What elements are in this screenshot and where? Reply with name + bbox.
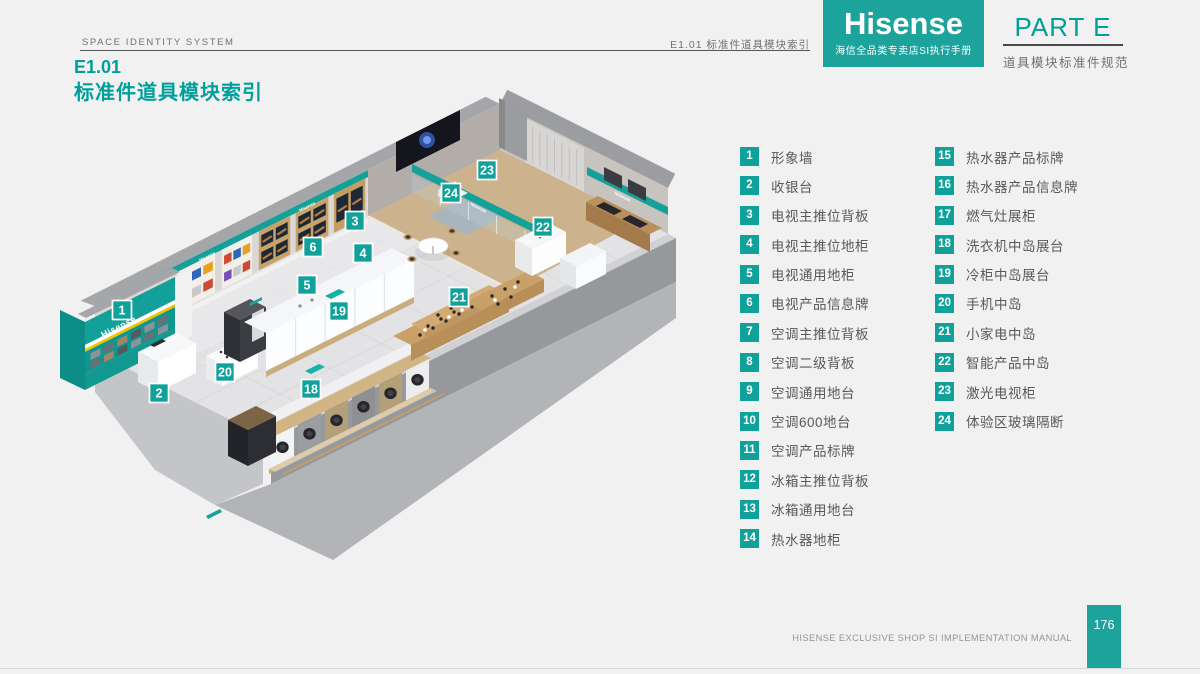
legend-badge-3: 3 bbox=[740, 206, 759, 225]
appliance-item bbox=[509, 295, 512, 298]
plan-badge-1: 1 bbox=[113, 301, 132, 320]
legend-badge-6: 6 bbox=[740, 294, 759, 313]
legend-badge-4: 4 bbox=[740, 235, 759, 254]
image-wall-return bbox=[60, 310, 85, 390]
legend-label-7: 空调主推位背板 bbox=[771, 323, 869, 343]
legend-item-4: 4电视主推位地柜 bbox=[740, 235, 869, 254]
legend-label-15: 热水器产品标牌 bbox=[966, 147, 1064, 167]
plan-badge-number-5: 5 bbox=[304, 279, 311, 293]
legend-badge-21: 21 bbox=[935, 323, 954, 342]
appliance-item bbox=[452, 310, 455, 313]
legend-item-19: 19冷柜中岛展台 bbox=[935, 265, 1078, 284]
legend-badge-7: 7 bbox=[740, 323, 759, 342]
legend-item-11: 11空调产品标牌 bbox=[740, 441, 869, 460]
footer-manual-label: HISENSE EXCLUSIVE SHOP SI IMPLEMENTATION… bbox=[792, 633, 1072, 643]
legend-badge-11: 11 bbox=[740, 441, 759, 460]
plan-badge-20: 20 bbox=[216, 363, 235, 382]
phone-item bbox=[226, 356, 229, 359]
appliance-item bbox=[457, 312, 460, 315]
legend-badge-16: 16 bbox=[935, 176, 954, 195]
legend-label-23: 激光电视柜 bbox=[966, 382, 1036, 402]
plan-badge-number-6: 6 bbox=[310, 241, 317, 255]
legend-item-23: 23激光电视柜 bbox=[935, 382, 1078, 401]
legend-label-16: 热水器产品信息牌 bbox=[966, 176, 1078, 196]
legend-item-22: 22智能产品中岛 bbox=[935, 353, 1078, 372]
legend-badge-24: 24 bbox=[935, 412, 954, 431]
legend-item-8: 8空调二级背板 bbox=[740, 353, 869, 372]
legend-item-20: 20手机中岛 bbox=[935, 294, 1078, 313]
washer-door-glass bbox=[415, 377, 421, 383]
appliance-item bbox=[439, 317, 442, 320]
legend-label-4: 电视主推位地柜 bbox=[771, 235, 869, 255]
washer-door-glass bbox=[280, 444, 286, 450]
legend-badge-20: 20 bbox=[935, 294, 954, 313]
plan-badge-number-4: 4 bbox=[360, 247, 367, 261]
legend-label-14: 热水器地柜 bbox=[771, 529, 841, 549]
legend-badge-9: 9 bbox=[740, 382, 759, 401]
legend-item-14: 14热水器地柜 bbox=[740, 529, 869, 548]
legend-label-2: 收银台 bbox=[771, 176, 813, 196]
appliance-item bbox=[470, 305, 473, 308]
plan-badge-number-23: 23 bbox=[480, 164, 494, 178]
legend-badge-18: 18 bbox=[935, 235, 954, 254]
legend-badge-10: 10 bbox=[740, 412, 759, 431]
legend-label-5: 电视通用地柜 bbox=[771, 264, 855, 284]
legend-label-12: 冰箱主推位背板 bbox=[771, 470, 869, 490]
plan-badge-21: 21 bbox=[450, 288, 469, 307]
legend-item-18: 18洗衣机中岛展台 bbox=[935, 235, 1078, 254]
plan-badge-5: 5 bbox=[298, 276, 317, 295]
legend-badge-15: 15 bbox=[935, 147, 954, 166]
legend-column-1: 1形象墙2收银台3电视主推位背板4电视主推位地柜5电视通用地柜6电视产品信息牌7… bbox=[740, 147, 869, 558]
appliance-item bbox=[490, 294, 493, 297]
appliance-item bbox=[436, 313, 439, 316]
legend-badge-13: 13 bbox=[740, 500, 759, 519]
legend-badge-23: 23 bbox=[935, 382, 954, 401]
plate-item bbox=[460, 308, 464, 312]
appliance-item bbox=[516, 280, 519, 283]
legend-badge-14: 14 bbox=[740, 529, 759, 548]
legend-item-3: 3电视主推位背板 bbox=[740, 206, 869, 225]
legend-badge-5: 5 bbox=[740, 265, 759, 284]
hisense-logo-box: Hisense 海信全品类专卖店SI执行手册 bbox=[823, 0, 984, 67]
legend-label-1: 形象墙 bbox=[771, 147, 813, 167]
plan-badge-18: 18 bbox=[302, 380, 321, 399]
legend-label-8: 空调二级背板 bbox=[771, 352, 855, 372]
chair-seat bbox=[453, 251, 458, 254]
plan-badge-2: 2 bbox=[150, 384, 169, 403]
appliance-item bbox=[426, 324, 429, 327]
legend-column-2: 15热水器产品标牌16热水器产品信息牌17燃气灶展柜18洗衣机中岛展台19冷柜中… bbox=[935, 147, 1078, 441]
legend-label-22: 智能产品中岛 bbox=[966, 352, 1050, 372]
legend-label-3: 电视主推位背板 bbox=[771, 205, 869, 225]
legend-item-6: 6电视产品信息牌 bbox=[740, 294, 869, 313]
legend-badge-17: 17 bbox=[935, 206, 954, 225]
plan-badge-number-18: 18 bbox=[304, 383, 318, 397]
plan-badge-number-24: 24 bbox=[444, 187, 458, 201]
hisense-logo-subtitle: 海信全品类专卖店SI执行手册 bbox=[823, 42, 984, 57]
appliance-item bbox=[444, 319, 447, 322]
plan-badge-24: 24 bbox=[442, 184, 461, 203]
plan-badge-number-21: 21 bbox=[452, 291, 466, 305]
legend-label-11: 空调产品标牌 bbox=[771, 440, 855, 460]
washer-door-glass bbox=[388, 390, 394, 396]
legend-item-13: 13冰箱通用地台 bbox=[740, 500, 869, 519]
legend-item-15: 15热水器产品标牌 bbox=[935, 147, 1078, 166]
legend-label-6: 电视产品信息牌 bbox=[771, 293, 869, 313]
plan-badge-number-19: 19 bbox=[332, 305, 346, 319]
plan-badge-22: 22 bbox=[534, 218, 553, 237]
pillar bbox=[175, 268, 192, 345]
phone-item bbox=[220, 351, 223, 354]
legend-label-21: 小家电中岛 bbox=[966, 323, 1036, 343]
legend-item-10: 10空调600地台 bbox=[740, 412, 869, 431]
legend-item-16: 16热水器产品信息牌 bbox=[935, 176, 1078, 195]
appliance-item bbox=[496, 302, 499, 305]
appliance-item bbox=[503, 287, 506, 290]
legend-label-9: 空调通用地台 bbox=[771, 382, 855, 402]
legend-item-21: 21小家电中岛 bbox=[935, 323, 1078, 342]
plan-badge-number-22: 22 bbox=[536, 221, 550, 235]
legend-label-18: 洗衣机中岛展台 bbox=[966, 235, 1064, 255]
plan-badge-19: 19 bbox=[330, 302, 349, 321]
appliance-item bbox=[418, 333, 421, 336]
chair-seat bbox=[405, 235, 410, 238]
plan-badge-3: 3 bbox=[346, 212, 365, 231]
part-title: PART E bbox=[1003, 12, 1123, 43]
legend-item-7: 7空调主推位背板 bbox=[740, 323, 869, 342]
footer-rule bbox=[0, 668, 1200, 669]
part-subtitle: 道具模块标准件规范 bbox=[1003, 52, 1123, 71]
washer-door-glass bbox=[307, 431, 313, 437]
legend-item-12: 12冰箱主推位背板 bbox=[740, 470, 869, 489]
tall-cabinet-side bbox=[499, 98, 505, 150]
chair-seat bbox=[409, 257, 414, 260]
legend-item-9: 9空调通用地台 bbox=[740, 382, 869, 401]
washer-door-glass bbox=[334, 417, 340, 423]
page-number-badge: 176 bbox=[1087, 605, 1121, 668]
legend-label-17: 燃气灶展柜 bbox=[966, 205, 1036, 225]
plan-badge-number-2: 2 bbox=[156, 387, 163, 401]
legend-label-13: 冰箱通用地台 bbox=[771, 499, 855, 519]
plate-item bbox=[423, 328, 427, 332]
legend-label-24: 体验区玻璃隔断 bbox=[966, 411, 1064, 431]
appliance-item bbox=[431, 326, 434, 329]
plan-badge-number-3: 3 bbox=[352, 215, 359, 229]
part-block: PART E 道具模块标准件规范 bbox=[1003, 12, 1123, 71]
plate-item bbox=[493, 298, 497, 302]
hisense-logotype: Hisense bbox=[823, 8, 984, 39]
legend-label-10: 空调600地台 bbox=[771, 411, 851, 431]
legend-badge-2: 2 bbox=[740, 176, 759, 195]
part-rule bbox=[1003, 44, 1123, 46]
legend-item-1: 1形象墙 bbox=[740, 147, 869, 166]
plan-badge-6: 6 bbox=[304, 238, 323, 257]
legend-label-19: 冷柜中岛展台 bbox=[966, 264, 1050, 284]
legend-label-20: 手机中岛 bbox=[966, 293, 1022, 313]
legend-badge-12: 12 bbox=[740, 470, 759, 489]
legend-badge-22: 22 bbox=[935, 353, 954, 372]
store-floor-plan: Hisense Hisense Hisense Hisense Hisense … bbox=[0, 0, 700, 610]
legend-item-2: 2收银台 bbox=[740, 176, 869, 195]
legend-item-17: 17燃气灶展柜 bbox=[935, 206, 1078, 225]
washer-door-glass bbox=[361, 404, 367, 410]
plan-badge-23: 23 bbox=[478, 161, 497, 180]
legend-badge-1: 1 bbox=[740, 147, 759, 166]
plan-badge-4: 4 bbox=[354, 244, 373, 263]
legend-item-5: 5电视通用地柜 bbox=[740, 265, 869, 284]
chair-seat bbox=[449, 229, 454, 232]
laser-tv-planet-core bbox=[423, 136, 431, 144]
legend-badge-8: 8 bbox=[740, 353, 759, 372]
plate-item bbox=[513, 285, 517, 289]
legend-badge-19: 19 bbox=[935, 265, 954, 284]
plate-item bbox=[447, 315, 451, 319]
legend-item-24: 24体验区玻璃隔断 bbox=[935, 412, 1078, 431]
plan-badge-number-20: 20 bbox=[218, 366, 232, 380]
plan-badge-number-1: 1 bbox=[119, 304, 126, 318]
